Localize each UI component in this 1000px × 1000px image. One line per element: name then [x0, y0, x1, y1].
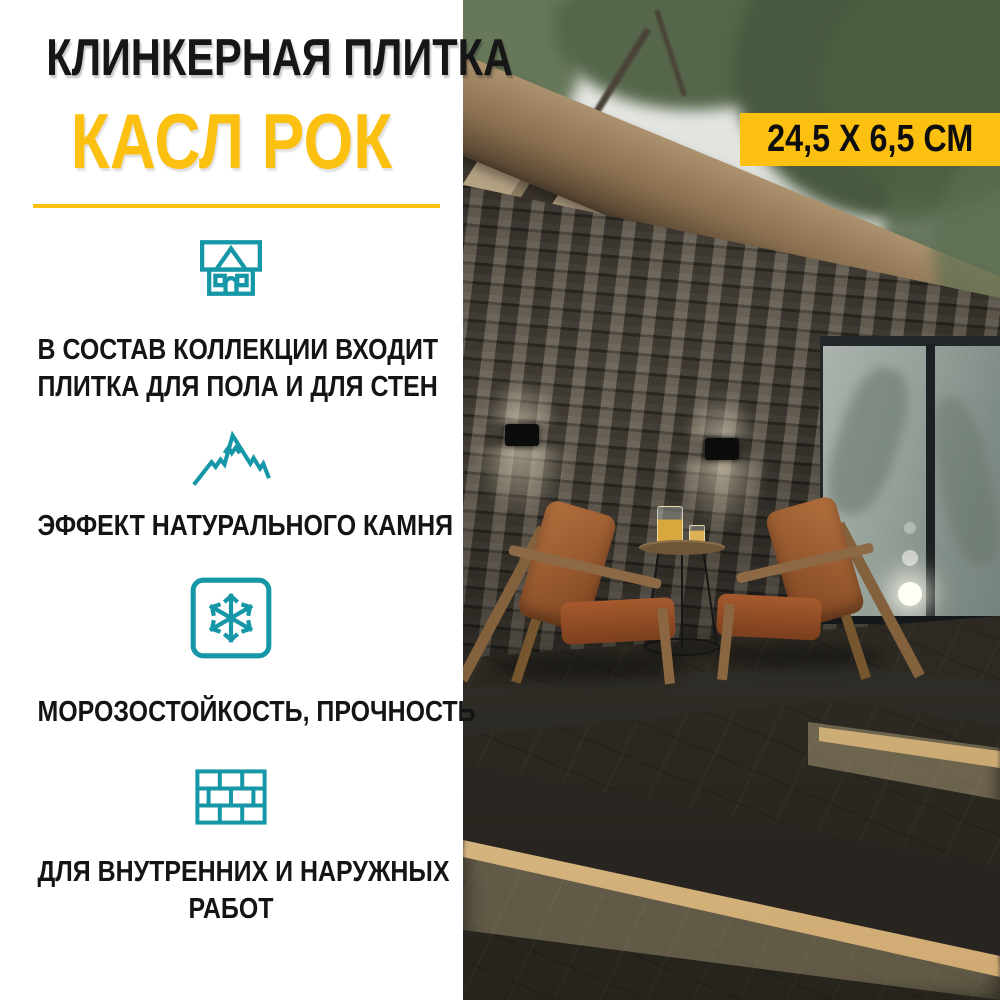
- accent-divider: [33, 204, 440, 208]
- product-category-title: КЛИНКЕРНАЯ ПЛИТКА: [46, 28, 416, 88]
- size-badge: 24,5 Х 6,5 СМ: [740, 113, 1000, 166]
- feature-text: ДЛЯ ВНУТРЕННИХ И НАРУЖНЫХ РАБОТ: [38, 854, 425, 928]
- armchair-left: [491, 500, 691, 695]
- feature-stone-effect: ЭФФЕКТ НАТУРАЛЬНОГО КАМНЯ: [6, 426, 456, 545]
- mountain-icon: [189, 426, 273, 490]
- feature-text: МОРОЗОСТОЙКОСТЬ, ПРОЧНОСТЬ: [38, 694, 425, 731]
- feature-text: В СОСТАВ КОЛЛЕКЦИИ ВХОДИТ ПЛИТКА ДЛЯ ПОЛ…: [38, 332, 425, 406]
- snowflake-icon: [189, 576, 273, 660]
- feature-indoor-outdoor: ДЛЯ ВНУТРЕННИХ И НАРУЖНЫХ РАБОТ: [6, 766, 456, 928]
- house-icon: [192, 228, 270, 308]
- feature-frost-resistance: МОРОЗОСТОЙКОСТЬ, ПРОЧНОСТЬ: [6, 576, 456, 731]
- chair-frame: [511, 618, 541, 684]
- wall-sconce: [705, 438, 739, 460]
- sphere-lamp: [898, 582, 922, 606]
- feature-collection: В СОСТАВ КОЛЛЕКЦИИ ВХОДИТ ПЛИТКА ДЛЯ ПОЛ…: [6, 228, 456, 406]
- armchair-right: [711, 496, 891, 691]
- chair-frame: [841, 614, 871, 680]
- door-frame-mullion: [926, 344, 935, 618]
- feature-text: ЭФФЕКТ НАТУРАЛЬНОГО КАМНЯ: [38, 508, 425, 545]
- wall-sconce: [505, 424, 539, 446]
- sconce-uplight: [671, 376, 771, 438]
- product-card: 24,5 Х 6,5 СМ КЛИНКЕРНАЯ ПЛИТКА КАСЛ РОК…: [0, 0, 1000, 1000]
- product-name-title: КАСЛ РОК: [42, 96, 422, 187]
- sphere-lamp-reflection: [904, 522, 916, 534]
- brick-wall-icon: [191, 766, 271, 828]
- size-badge-label: 24,5 Х 6,5 СМ: [767, 118, 973, 161]
- sphere-lamp-reflection: [902, 550, 918, 566]
- info-panel: КЛИНКЕРНАЯ ПЛИТКА КАСЛ РОК В СОСТАВ КОЛЛ…: [0, 0, 463, 1000]
- sconce-uplight: [471, 362, 571, 424]
